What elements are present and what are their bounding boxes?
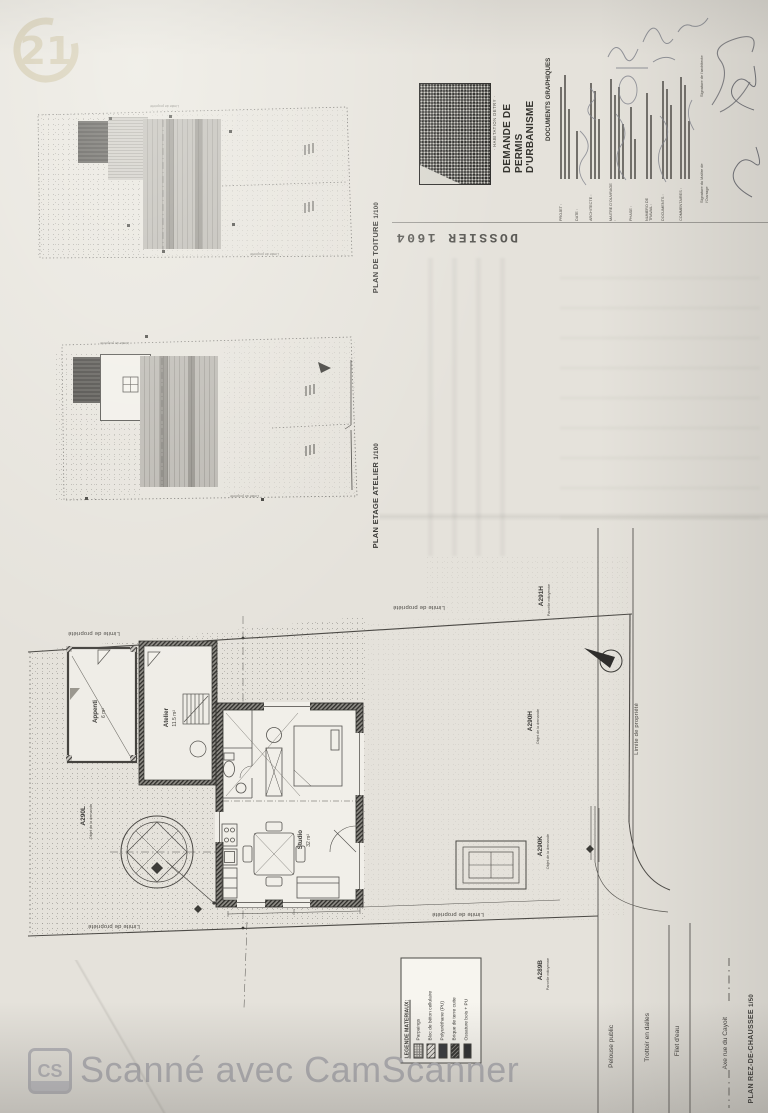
dossier-number: DOSSIER 1604 [398,230,518,245]
century21-number: 21 [20,29,73,73]
north-compass-icon [584,648,622,672]
legend-item-brique: Brique de terre cuite [449,962,461,1058]
paper-fold-shadow [380,512,768,521]
legend-title: LEGENDE MATERIAUX: [404,962,410,1058]
paper-crease [0,960,240,1113]
etage-plan-linework [50,330,365,510]
parcel-note-a291h: Parcelle mitoyenne [547,574,579,592]
century21-logo: 21 [6,6,86,86]
legend-item-parpaings: Parpaings [412,962,424,1058]
boundary-label-etage: Limite de propriété [100,341,129,345]
rdc-plan-title: PLAN REZ-DE-CHAUSSEE 1/50 [748,986,768,1004]
well [121,816,216,905]
document-subtitle: DOCUMENTS GRAPHIQUES [545,58,552,141]
toiture-plan-linework [30,100,360,265]
boundary-label-bottom-left: Limite de propriété [88,923,140,929]
parcel-note-a290h: Objet de la demande [536,699,571,717]
parcel-note-a290l: Objet de la demande [89,794,124,812]
room-area-studio: 32 m² [306,825,319,843]
terrace-structure [456,841,526,889]
parcel-note-a290k: Objet de la demande [546,824,581,842]
bleed-through-marks2 [560,255,760,520]
title-block-rule [392,222,768,223]
legend-item-ossature: Ossature bois + PU [461,962,473,1058]
room-area-atelier: 11.5 m² [172,701,189,719]
site-photo-thumbnail [419,83,491,185]
document-title: DEMANDE DE PERMIS D'URBANISME [502,63,537,173]
boundary-label-top-left: Limite de propriété [68,630,120,636]
boundary-label-top-right: Limite de propriété [393,604,445,610]
street-label-filet: Filet d'eau [674,1018,704,1036]
street-label-axe: Axe rue du Cayoit [722,1009,768,1027]
room-area-appenti: 6 m² [101,699,111,717]
boundary-label-toiture: Limite de propriété [150,104,179,108]
boundary-label-bottom-right: Limite de propriété [432,911,484,917]
etage-plan-title: PLAN ETAGE ATELIER 1/100 [371,437,476,455]
parcel-note-a289b: Parcelle mitoyenne [546,948,578,966]
boundary-label-toiture2: Limite de propriété [250,252,279,256]
scanned-permit-sheet: PLAN DE TOITURE 1/100 PLAN ETAGE ATELIER… [0,0,768,1113]
materials-legend: LEGENDE MATERIAUX: Parpaings Bloc de bét… [400,957,481,1063]
legend-item-polyurethane: Polyuréthane (PU) [436,962,448,1058]
boundary-label-right: Limite de propriété [634,694,686,712]
handwritten-signature-top-right [700,10,766,125]
legend-item-beton-cellulaire: Bloc de béton cellulaire [424,962,436,1058]
project-name: · HABITATION DETRY · [492,73,497,173]
boundary-label-etage2: Limite de propriété [230,494,259,498]
